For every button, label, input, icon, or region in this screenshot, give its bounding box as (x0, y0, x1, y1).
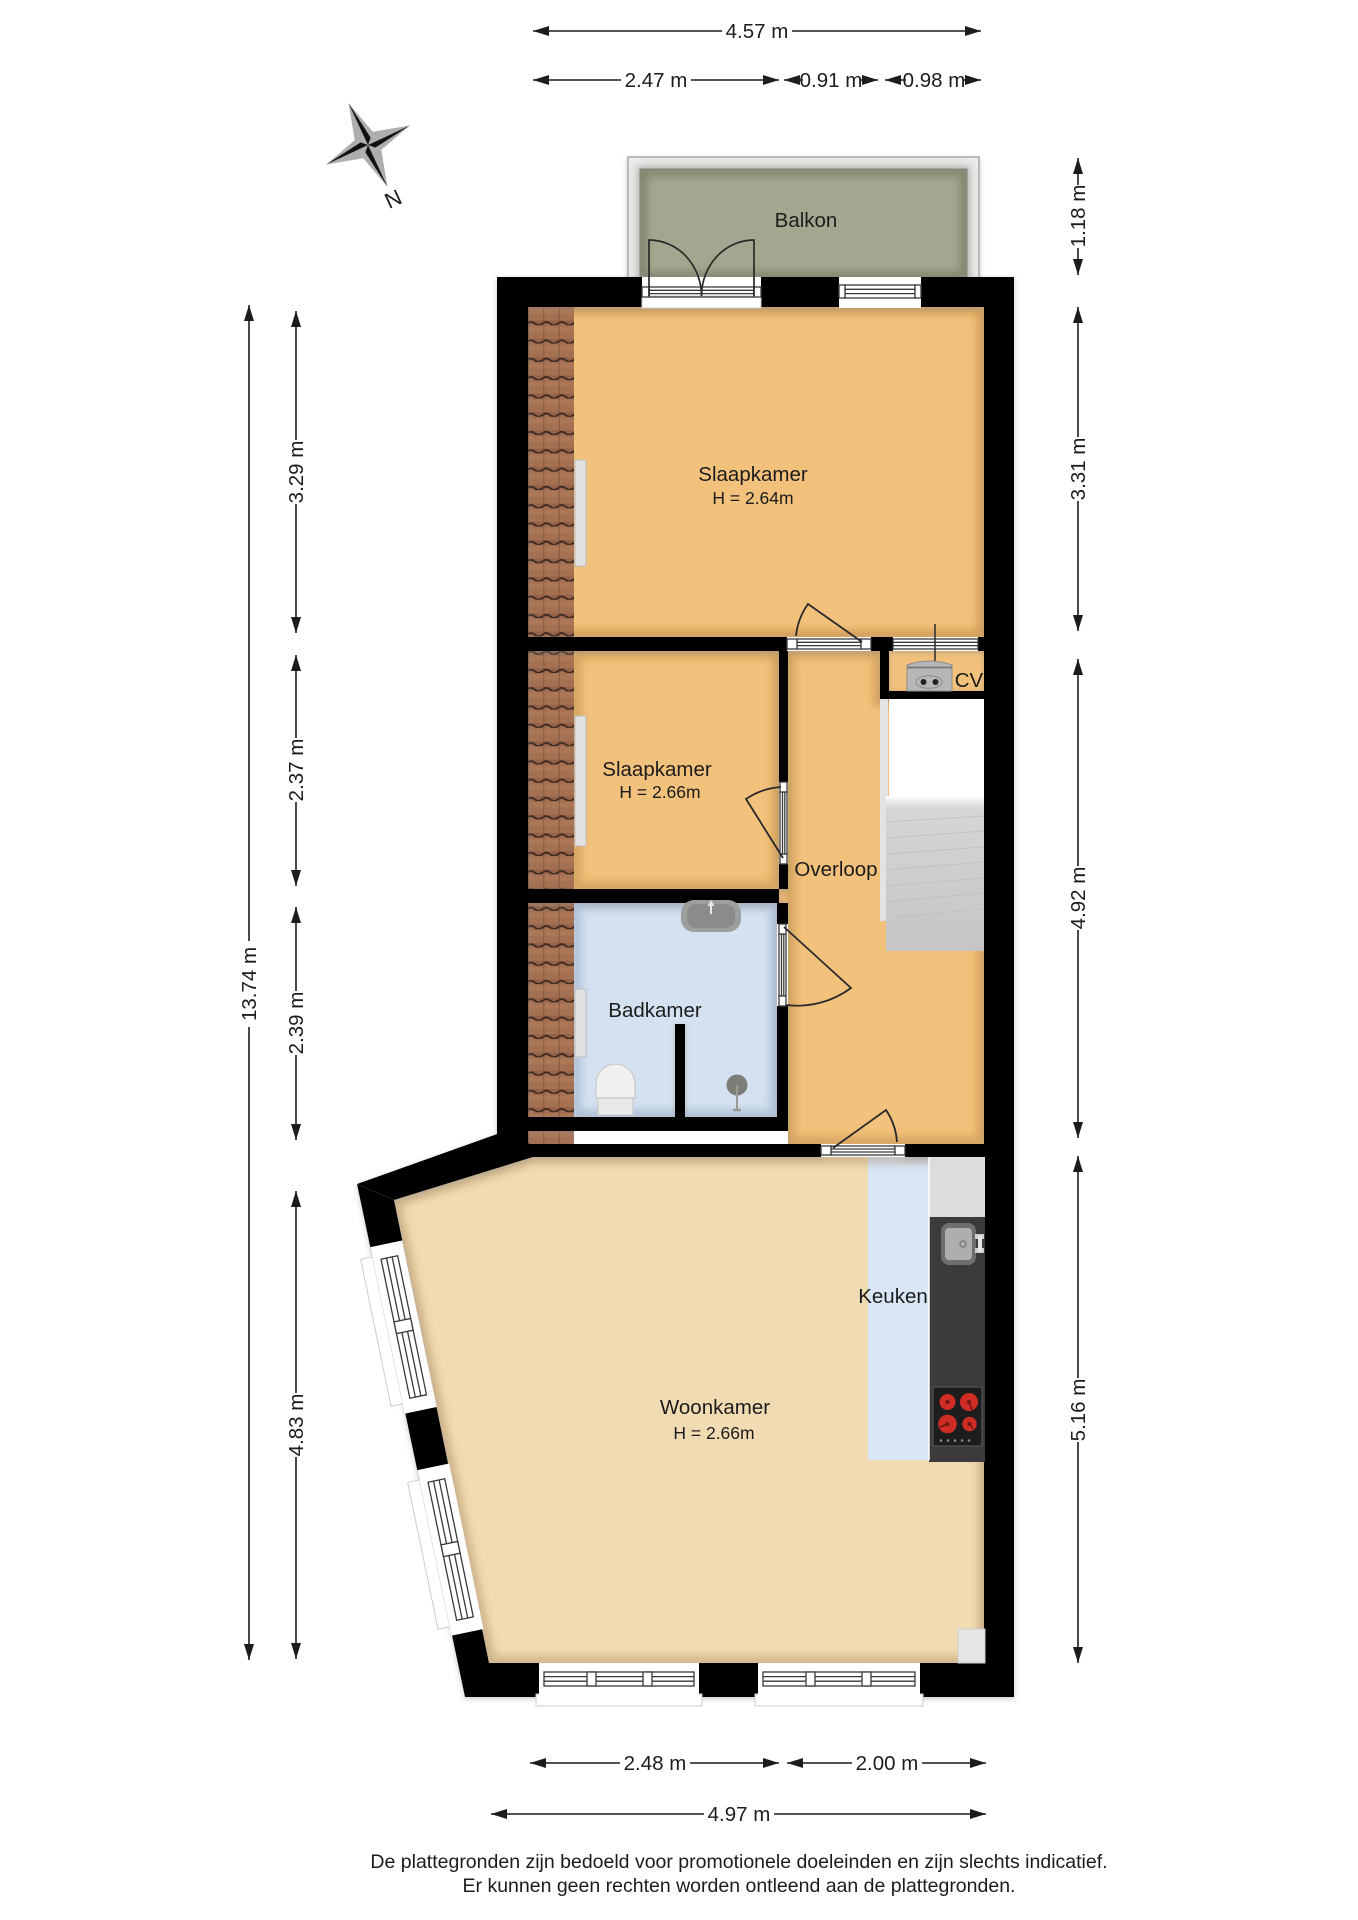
svg-text:2.00 m: 2.00 m (856, 1752, 919, 1775)
svg-text:H = 2.64m: H = 2.64m (712, 488, 793, 508)
svg-text:Woonkamer: Woonkamer (660, 1396, 770, 1419)
svg-text:CV: CV (955, 669, 984, 692)
svg-text:H = 2.66m: H = 2.66m (619, 782, 700, 802)
svg-text:4.83 m: 4.83 m (285, 1394, 308, 1457)
svg-text:Slaapkamer: Slaapkamer (698, 463, 808, 486)
svg-text:2.48 m: 2.48 m (624, 1752, 687, 1775)
svg-text:Badkamer: Badkamer (608, 999, 702, 1022)
svg-text:Slaapkamer: Slaapkamer (602, 758, 712, 781)
svg-text:Er kunnen geen rechten worden: Er kunnen geen rechten worden ontleend a… (463, 1875, 1016, 1897)
svg-text:0.98 m: 0.98 m (903, 69, 966, 92)
svg-text:5.16 m: 5.16 m (1067, 1379, 1090, 1442)
svg-text:4.57 m: 4.57 m (726, 20, 789, 43)
svg-text:2.39 m: 2.39 m (285, 992, 308, 1055)
svg-text:2.37 m: 2.37 m (285, 739, 308, 802)
svg-text:Overloop: Overloop (794, 858, 877, 881)
svg-text:4.92 m: 4.92 m (1067, 867, 1090, 930)
svg-text:2.47 m: 2.47 m (625, 69, 688, 92)
svg-text:3.29 m: 3.29 m (285, 441, 308, 504)
svg-text:H = 2.66m: H = 2.66m (673, 1423, 754, 1443)
svg-text:Balkon: Balkon (775, 209, 838, 232)
svg-text:3.31 m: 3.31 m (1067, 438, 1090, 501)
svg-text:De plattegronden zijn bedoeld: De plattegronden zijn bedoeld voor promo… (370, 1851, 1107, 1873)
svg-text:1.18 m: 1.18 m (1067, 185, 1090, 248)
svg-text:Keuken: Keuken (858, 1285, 928, 1308)
svg-text:0.91 m: 0.91 m (800, 69, 863, 92)
svg-text:4.97 m: 4.97 m (708, 1803, 771, 1826)
svg-text:13.74 m: 13.74 m (238, 947, 261, 1021)
